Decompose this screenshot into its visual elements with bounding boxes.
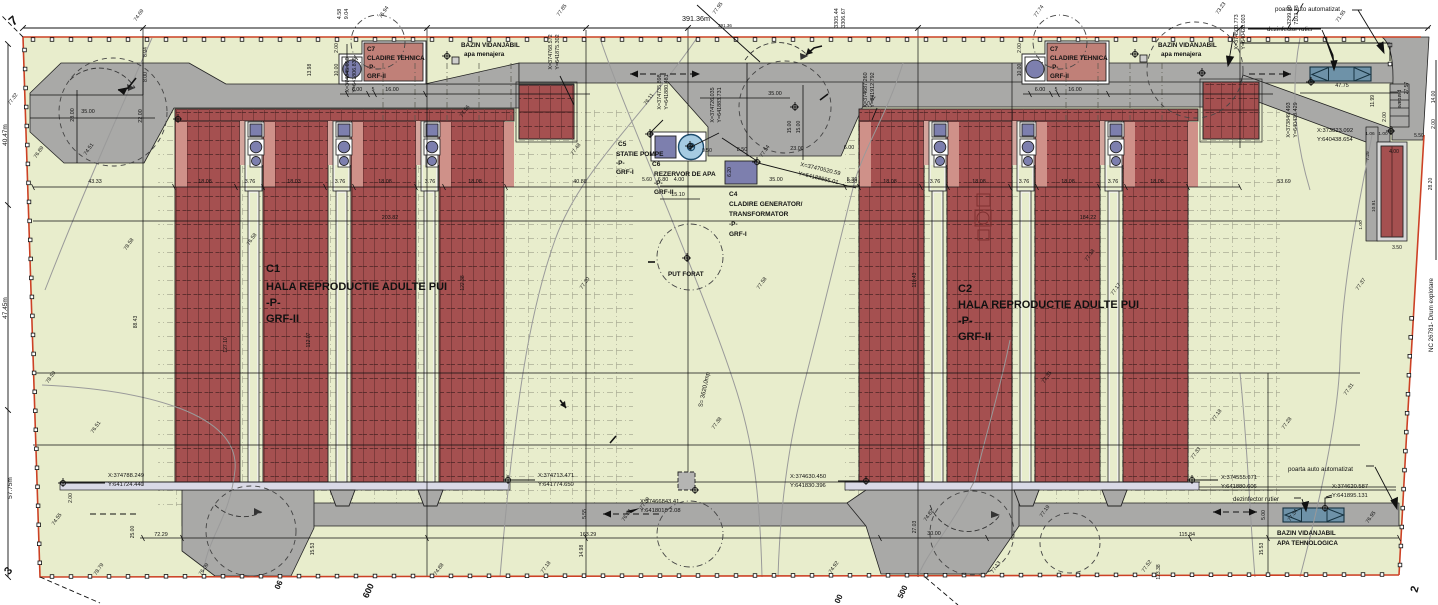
svg-text:122.38: 122.38 [460,275,466,291]
svg-text:15.53: 15.53 [310,543,316,556]
svg-text:43.33: 43.33 [88,179,102,185]
svg-text:391.36m: 391.36m [682,14,710,23]
svg-text:23.00: 23.00 [790,146,804,152]
svg-text:NC 26781- Drum explotare: NC 26781- Drum explotare [1428,277,1435,351]
svg-text:4.58: 4.58 [337,9,343,20]
svg-text:-P-: -P- [616,160,625,167]
svg-text:X:374788.249: X:374788.249 [108,473,144,479]
svg-text:18.08: 18.08 [883,179,897,185]
svg-text:2.00: 2.00 [1431,119,1437,129]
svg-text:3.76: 3.76 [425,179,436,185]
svg-text:28.20: 28.20 [1428,178,1434,191]
svg-text:X=374768.572: X=374768.572 [548,34,554,69]
svg-text:GRF-II: GRF-II [367,73,386,80]
svg-text:Y:641830.396: Y:641830.396 [790,483,826,489]
svg-text:18.08: 18.08 [198,179,212,185]
svg-text:47.75: 47.75 [1335,83,1349,89]
svg-text:C1: C1 [266,263,280,275]
svg-text:47.45m: 47.45m [2,297,9,319]
svg-text:18.08: 18.08 [468,179,482,185]
svg-text:15.00: 15.00 [787,121,793,134]
svg-text:GRF-I: GRF-I [729,231,747,238]
svg-text:Y=641883.731: Y=641883.731 [717,87,723,122]
svg-text:X=374735.898: X=374735.898 [657,74,663,109]
svg-text:88.43: 88.43 [133,316,139,329]
svg-text:Y=640428.003: Y=640428.003 [1241,14,1247,49]
svg-text:BAZIN VIDANJABIL: BAZIN VIDANJABIL [1277,530,1336,537]
svg-text:3.76: 3.76 [930,179,941,185]
svg-text:8.00: 8.00 [143,72,149,82]
svg-text:C4: C4 [729,191,738,198]
svg-text:1.06: 1.06 [1365,131,1375,137]
svg-text:18.08: 18.08 [972,179,986,185]
svg-text:391.36: 391.36 [718,23,732,28]
svg-text:3.76: 3.76 [245,179,256,185]
svg-text:poarta auto automatizat: poarta auto automatizat [1275,6,1340,13]
svg-text:4.00: 4.00 [1389,149,1399,155]
svg-text:GRF-II: GRF-II [1050,73,1069,80]
svg-text:3.76: 3.76 [335,179,346,185]
svg-text:Y:6418018 2.08: Y:6418018 2.08 [640,508,681,514]
svg-text:28.00: 28.00 [70,108,76,122]
svg-text:5.00: 5.00 [1261,510,1267,520]
svg-text:5: 5 [372,87,375,93]
svg-text:6.00: 6.00 [844,145,855,151]
svg-text:18.03: 18.03 [287,179,301,185]
svg-text:40.88: 40.88 [573,179,587,185]
svg-text:13.98: 13.98 [307,64,313,77]
svg-text:9.50: 9.50 [702,148,712,154]
svg-text:2.00: 2.00 [334,43,340,53]
svg-text:STATIE POMPE: STATIE POMPE [616,151,664,158]
svg-text:C7: C7 [367,46,376,53]
svg-text:X=373849.493: X=373849.493 [1286,102,1292,137]
svg-text:-P-: -P- [729,221,738,228]
svg-text:C6: C6 [652,161,661,168]
svg-text:3.76: 3.76 [1108,179,1119,185]
svg-text:C7: C7 [1050,46,1059,53]
svg-text:27.03: 27.03 [912,521,918,534]
svg-text:18.08: 18.08 [1061,179,1075,185]
svg-text:7.29: 7.29 [1365,151,1371,161]
svg-text:6.00: 6.00 [1035,87,1046,93]
svg-text:CLADIRE TEHNICA: CLADIRE TEHNICA [1050,55,1108,62]
svg-text:Y=641875.302: Y=641875.302 [555,34,561,69]
svg-text:2.00: 2.00 [1017,43,1023,53]
svg-text:110.43: 110.43 [912,272,918,287]
svg-text:10.91: 10.91 [1371,200,1377,212]
svg-text:X=374726.035: X=374726.035 [710,87,716,122]
svg-text:6.94: 6.94 [143,47,149,57]
svg-text:203.82: 203.82 [382,215,399,221]
svg-text:123.38: 123.38 [1156,564,1162,580]
svg-text:72.29: 72.29 [154,532,168,538]
svg-text:3306.67: 3306.67 [841,8,847,28]
svg-text:Y=640438.429: Y=640438.429 [1293,102,1299,137]
svg-text:APA TEHNOLOGICA: APA TEHNOLOGICA [1277,540,1338,547]
svg-text:-P-: -P- [1050,64,1058,71]
svg-text:HALA REPRODUCTIE ADULTE PUI: HALA REPRODUCTIE ADULTE PUI [958,299,1139,311]
svg-text:Y:641880.606: Y:641880.606 [1221,484,1257,490]
svg-text:5.60: 5.60 [642,177,652,183]
svg-text:dezinfector rutier: dezinfector rutier [1233,496,1279,503]
svg-text:X:373823.092: X:373823.092 [1317,128,1353,134]
svg-text:1.00: 1.00 [1378,131,1388,137]
svg-text:TRANSFORMATOR: TRANSFORMATOR [729,211,789,218]
svg-text:16.00: 16.00 [1068,87,1082,93]
svg-text:184.22: 184.22 [1080,215,1097,221]
svg-text:Y:641774.650: Y:641774.650 [538,482,574,488]
svg-text:PUT FORAT: PUT FORAT [668,271,704,278]
svg-text:1.00: 1.00 [1358,220,1364,230]
svg-text:BAZIN VIDANJABIL: BAZIN VIDANJABIL [1158,42,1217,49]
svg-text:X=374845.050: X=374845.050 [345,57,351,92]
svg-text:57.75m: 57.75m [7,477,14,499]
svg-text:6.20: 6.20 [727,167,733,177]
svg-text:18.08: 18.08 [1150,179,1164,185]
svg-text:parcare: parcare [1396,90,1402,109]
svg-text:5.30: 5.30 [847,177,858,183]
svg-text:15.00: 15.00 [796,121,802,134]
svg-text:30.00: 30.00 [927,531,941,537]
svg-text:C2: C2 [958,283,972,295]
svg-text:22.00: 22.00 [138,109,144,123]
svg-text:18.08: 18.08 [378,179,392,185]
svg-text:25.00: 25.00 [130,526,136,539]
svg-text:Y:640438.654: Y:640438.654 [1317,137,1354,143]
svg-text:-P-: -P- [266,297,281,309]
svg-text:CLADIRE GENERATOR/: CLADIRE GENERATOR/ [729,201,803,208]
svg-text:14.98: 14.98 [579,545,585,558]
svg-text:10.00: 10.00 [1017,64,1023,77]
svg-text:15.10: 15.10 [671,192,685,198]
svg-text:2.00: 2.00 [1382,112,1388,122]
svg-text:CLADIRE TEHNICA: CLADIRE TEHNICA [367,55,425,62]
svg-text:X:374620.587: X:374620.587 [1332,484,1368,490]
svg-text:127.10: 127.10 [223,337,229,353]
svg-text:3.76: 3.76 [1019,179,1030,185]
svg-text:10.00: 10.00 [334,64,340,77]
svg-text:dezinfector rutier: dezinfector rutier [1267,26,1313,33]
svg-text:3305.44: 3305.44 [834,8,840,28]
svg-text:apa menajera: apa menajera [1161,51,1202,58]
svg-text:8.50: 8.50 [737,147,748,153]
svg-text:2.00: 2.00 [68,493,74,503]
svg-text:X:374555.671: X:374555.671 [1221,475,1257,481]
svg-text:GRF-II: GRF-II [266,313,299,325]
svg-text:GRF-II: GRF-II [958,331,991,343]
svg-text:Y=641880.481: Y=641880.481 [664,74,670,109]
svg-text:53.69: 53.69 [1277,179,1291,185]
svg-text:15.53: 15.53 [1259,543,1265,556]
svg-text:5: 5 [1055,87,1058,93]
svg-text:-P-: -P- [958,315,973,327]
svg-text:X:374630.450: X:374630.450 [790,474,826,480]
svg-text:-P-: -P- [367,64,375,71]
svg-text:3.50: 3.50 [1392,245,1402,251]
svg-text:Y:641895.131: Y:641895.131 [1332,493,1368,499]
svg-text:27.57: 27.57 [1404,82,1410,95]
svg-text:14.00: 14.00 [1431,91,1437,104]
svg-text:3299.90: 3299.90 [1287,5,1293,25]
svg-text:BAZIN VIDANJABIL: BAZIN VIDANJABIL [461,42,520,49]
svg-text:163.29: 163.29 [580,532,597,538]
svg-text:7103.73: 7103.73 [1294,5,1300,25]
svg-text:35.00: 35.00 [768,91,782,97]
svg-text:40.47m: 40.47m [2,124,9,146]
svg-text:C5: C5 [618,141,627,148]
svg-text:X=374500.773: X=374500.773 [1234,14,1240,49]
svg-text:GRF-I: GRF-I [616,169,634,176]
svg-text:5.50: 5.50 [1414,133,1424,139]
svg-text:5.55: 5.55 [582,509,588,519]
svg-text:6.80: 6.80 [658,177,669,183]
svg-text:9.04: 9.04 [344,9,350,20]
svg-text:35.00: 35.00 [769,177,783,183]
svg-text:poarta auto automatizat: poarta auto automatizat [1288,466,1353,473]
svg-text:apa menajera: apa menajera [464,51,505,58]
svg-text:Y:641724.440: Y:641724.440 [108,482,144,488]
svg-text:11.99: 11.99 [1370,95,1376,107]
svg-text:115.84: 115.84 [1179,532,1195,538]
svg-text:4.00: 4.00 [674,177,685,183]
svg-text:HALA REPRODUCTIE ADULTE PUI: HALA REPRODUCTIE ADULTE PUI [266,281,447,293]
svg-text:35.00: 35.00 [81,109,95,115]
svg-text:112.07: 112.07 [306,332,312,347]
svg-text:Y=641806.836: Y=641806.836 [352,57,358,92]
svg-text:X:374713.471: X:374713.471 [538,473,574,479]
svg-text:16.00: 16.00 [385,87,399,93]
